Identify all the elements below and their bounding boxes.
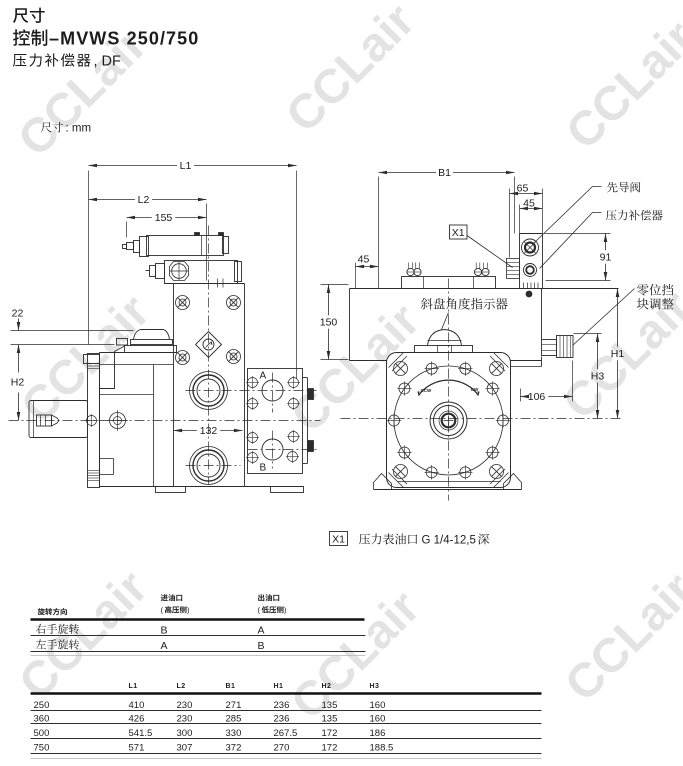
svg-text:H3: H3: [591, 371, 605, 383]
svg-text:X1: X1: [332, 534, 345, 546]
svg-text:H2: H2: [322, 683, 332, 690]
svg-text:285: 285: [226, 713, 242, 724]
svg-text:155: 155: [155, 212, 173, 224]
svg-text:H3: H3: [370, 683, 380, 690]
svg-text:236: 236: [274, 700, 290, 711]
svg-text:B: B: [260, 463, 267, 474]
svg-text:271: 271: [226, 700, 242, 711]
svg-text:172: 172: [322, 743, 338, 754]
svg-text:270: 270: [274, 743, 290, 754]
svg-text:, DF: , DF: [94, 54, 122, 70]
svg-text:CCLair: CCLair: [276, 0, 425, 143]
svg-text:(: (: [161, 606, 164, 615]
svg-text:CCW: CCW: [421, 388, 432, 393]
svg-text:230: 230: [177, 700, 193, 711]
svg-text:750: 750: [34, 743, 50, 754]
svg-text:B: B: [161, 625, 168, 637]
svg-text:: mm: : mm: [66, 123, 92, 135]
svg-text:X1: X1: [452, 227, 465, 239]
svg-text:): ): [284, 606, 287, 615]
svg-text:300: 300: [177, 728, 193, 739]
svg-text:22: 22: [12, 308, 24, 320]
svg-text:45: 45: [523, 198, 535, 210]
svg-text:186: 186: [370, 728, 386, 739]
svg-text:541.5: 541.5: [129, 728, 153, 739]
svg-text:L2: L2: [177, 683, 186, 690]
svg-text:330: 330: [226, 728, 242, 739]
svg-text:135: 135: [322, 713, 338, 724]
svg-text:B1: B1: [226, 683, 236, 690]
svg-text:B1: B1: [438, 167, 451, 179]
svg-text:267.5: 267.5: [274, 728, 298, 739]
svg-text:L1: L1: [180, 160, 192, 172]
svg-text:CW: CW: [471, 387, 479, 392]
svg-text:L1: L1: [129, 683, 138, 690]
svg-text:(: (: [258, 606, 261, 615]
svg-text:H1: H1: [274, 683, 284, 690]
svg-text:B: B: [258, 640, 265, 652]
svg-text:A: A: [258, 625, 265, 637]
svg-text:G 1/4-12,5: G 1/4-12,5: [422, 535, 476, 547]
svg-text:172: 172: [322, 728, 338, 739]
svg-text:426: 426: [129, 713, 145, 724]
svg-text:410: 410: [129, 700, 145, 711]
svg-text:160: 160: [370, 700, 386, 711]
svg-text:): ): [187, 606, 190, 615]
svg-text:A: A: [260, 371, 267, 382]
svg-text:500: 500: [34, 728, 50, 739]
svg-text:571: 571: [129, 743, 145, 754]
svg-text:160: 160: [370, 713, 386, 724]
svg-text:372: 372: [226, 743, 242, 754]
svg-text:65: 65: [517, 183, 529, 195]
svg-text:91: 91: [600, 252, 612, 264]
svg-text:H2: H2: [11, 377, 25, 389]
svg-text:CCLair: CCLair: [555, 563, 683, 712]
svg-text:230: 230: [177, 713, 193, 724]
svg-text:307: 307: [177, 743, 193, 754]
svg-text:360: 360: [34, 713, 50, 724]
svg-text:A: A: [161, 640, 168, 652]
svg-text:H1: H1: [611, 348, 625, 360]
svg-text:CCLair: CCLair: [556, 11, 683, 160]
svg-text:106: 106: [528, 391, 546, 403]
svg-text:150: 150: [320, 317, 338, 329]
svg-text:–MVWS 250/750: –MVWS 250/750: [49, 29, 199, 49]
svg-text:188.5: 188.5: [370, 743, 394, 754]
svg-text:135: 135: [322, 700, 338, 711]
svg-text:L2: L2: [138, 194, 150, 206]
svg-text:45: 45: [358, 254, 370, 266]
svg-text:250: 250: [34, 700, 50, 711]
svg-text:236: 236: [274, 713, 290, 724]
